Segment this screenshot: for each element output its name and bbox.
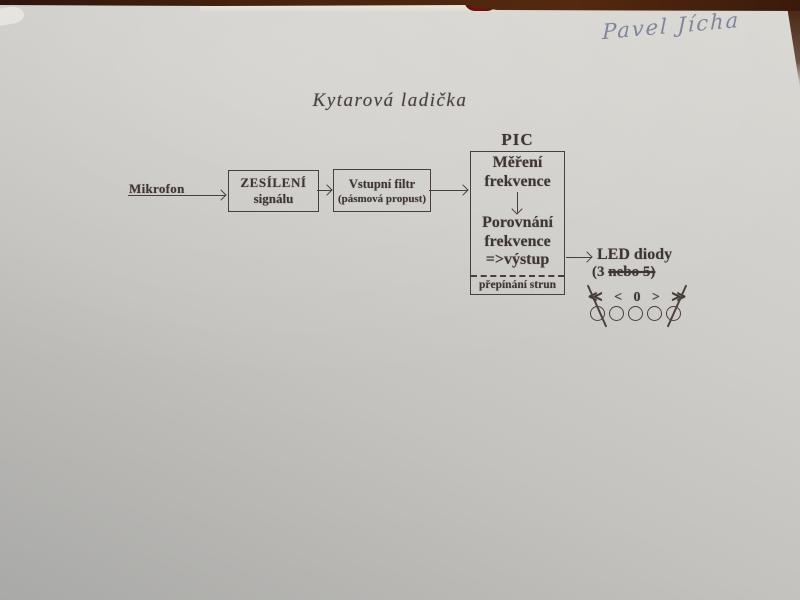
block-input-filter-line2: (pásmová propust) bbox=[338, 192, 426, 206]
block-input-filter: Vstupní filtr (pásmová propust) bbox=[333, 169, 431, 212]
led-direction-symbol: 0 bbox=[633, 290, 640, 306]
arrow-pic-to-led bbox=[566, 257, 591, 258]
pic-compare-line2: frekvence bbox=[484, 233, 550, 252]
block-diagram: Kytarová ladička Mikrofon ZESÍLENÍ signá… bbox=[0, 0, 800, 600]
led-diodes-label: LED diody bbox=[597, 246, 672, 264]
pic-compare-line3: =>výstup bbox=[486, 251, 550, 270]
pic-compare-line1: Porovnání bbox=[482, 214, 553, 233]
led-circle bbox=[609, 306, 624, 321]
led-circle bbox=[628, 306, 643, 321]
led-direction-symbols: ≪<0>≫ bbox=[588, 289, 686, 306]
block-input-filter-line1: Vstupní filtr bbox=[349, 176, 415, 192]
block-pic: Měření frekvence Porovnání frekvence =>v… bbox=[470, 151, 565, 295]
block-amplifier: ZESÍLENÍ signálu bbox=[228, 170, 319, 212]
led-direction-symbol: < bbox=[614, 290, 622, 306]
block-amplifier-line2: signálu bbox=[254, 191, 294, 207]
arrow-filter-to-pic bbox=[429, 190, 467, 191]
arrow-amplifier-to-filter bbox=[317, 190, 331, 191]
photographed-paper: Pavel Jícha Kytarová ladička Mikrofon ZE… bbox=[0, 0, 800, 600]
pic-footer-string-switching: přepínání strun bbox=[471, 275, 564, 294]
pic-measure-line2: frekvence bbox=[484, 173, 550, 192]
arrow-mikrofon-to-amplifier bbox=[128, 195, 225, 196]
diagram-title: Kytarová ladička bbox=[270, 90, 510, 112]
led-count-note-struck: nebo 5) bbox=[608, 264, 655, 280]
pic-chip-label: PIC bbox=[470, 130, 565, 150]
led-direction-symbol: > bbox=[652, 290, 660, 306]
led-count-note: (3 nebo 5) bbox=[592, 264, 655, 281]
block-amplifier-line1: ZESÍLENÍ bbox=[240, 175, 306, 191]
arrow-measure-to-compare-icon bbox=[517, 192, 518, 213]
led-count-note-prefix: (3 bbox=[592, 264, 608, 280]
led-circle bbox=[647, 306, 662, 321]
pic-measure-line1: Měření bbox=[493, 154, 543, 173]
